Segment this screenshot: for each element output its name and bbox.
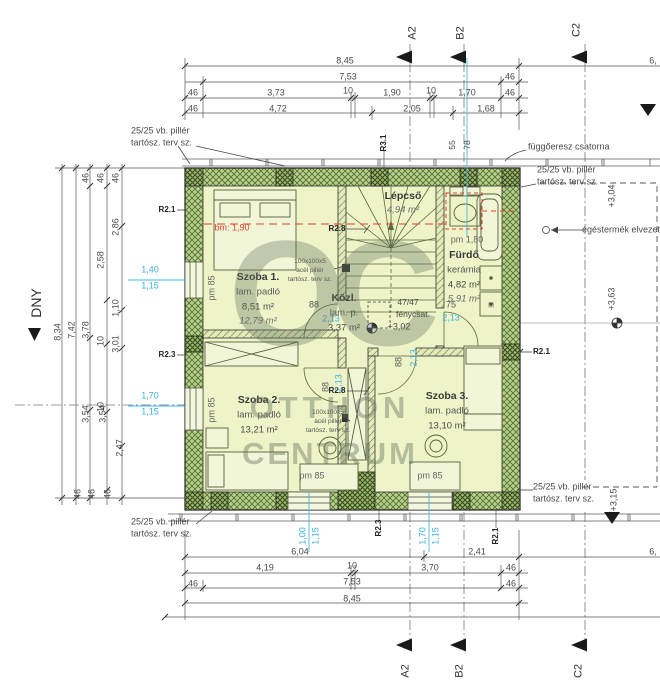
steel-pillar <box>342 264 350 272</box>
nightstand <box>206 428 228 448</box>
desk <box>410 462 460 490</box>
dny-arrow-icon <box>28 328 41 341</box>
slope-marker-icon <box>640 104 656 116</box>
floor-plan-drawing <box>0 0 660 700</box>
desk <box>300 464 358 490</box>
slope-marker-icon <box>604 512 620 524</box>
bed-double <box>214 190 296 270</box>
wc <box>450 187 463 195</box>
floor-plan-page: 8,456,7,5346463,73101,90101,7046464,722,… <box>0 0 660 700</box>
